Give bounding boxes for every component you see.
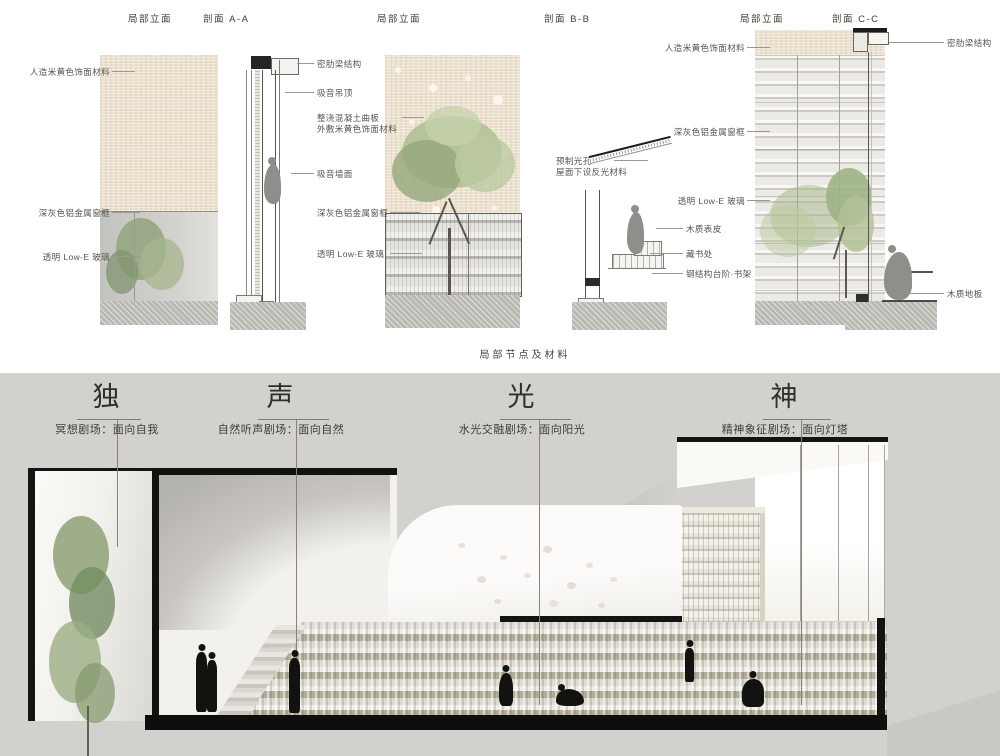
wall-cut-edge xyxy=(877,618,885,728)
label-acoustic-ceiling: 吸音吊顶 xyxy=(317,88,353,99)
label-lowe-glass: 透明 Low-E 玻璃 xyxy=(635,196,745,207)
presentation-board: 局部立面 剖面 A-A 局部立面 剖面 B-B 局部立面 剖面 C-C xyxy=(0,0,1000,756)
tree-trunk xyxy=(448,228,451,298)
leader-line xyxy=(650,253,683,254)
leader-line xyxy=(614,160,648,161)
tree-canopy xyxy=(760,205,816,257)
ceiling-cut-edge xyxy=(677,437,888,442)
window-mullion xyxy=(468,214,469,296)
header-section-aa: 剖面 A-A xyxy=(203,11,249,25)
detail-sheet: 局部立面 剖面 A-A 局部立面 剖面 B-B 局部立面 剖面 C-C xyxy=(0,0,1000,373)
standing-person-figure xyxy=(207,660,217,712)
label-beige-finish: 人造米黄色饰面材料 xyxy=(0,67,110,78)
leader-line xyxy=(656,228,683,229)
label-concrete-finish: 外敷米黄色饰面材料 xyxy=(317,124,397,135)
label-gray-frame: 深灰色铝金属窗框 xyxy=(0,208,110,219)
theater-glyph: 神 xyxy=(715,375,855,414)
sheet-caption: 局部节点及材料 xyxy=(440,346,610,361)
label-rib-beam: 密肋梁结构 xyxy=(947,38,992,49)
meditation-wall xyxy=(28,468,159,721)
glazing-line xyxy=(871,52,872,312)
label-lowe-glass: 透明 Low-E 玻璃 xyxy=(317,249,384,260)
leader-line xyxy=(906,293,944,294)
theater-glyph: 声 xyxy=(211,375,351,414)
label-steel-step-bookshelf: 钢结构台阶·书架 xyxy=(686,269,752,280)
wall-line xyxy=(246,70,247,302)
caption-leader xyxy=(539,419,540,705)
leader-line xyxy=(747,47,770,48)
elevation-1-base xyxy=(100,301,218,325)
label-rib-beam: 密肋梁结构 xyxy=(317,59,362,70)
standing-person-figure xyxy=(289,658,300,713)
theater-subtitle: 自然听声剧场：面向自然 xyxy=(211,421,351,437)
plant-foliage xyxy=(75,663,115,723)
ground-hatch xyxy=(230,302,306,330)
theater-sheng: 声 自然听声剧场：面向自然 xyxy=(211,375,351,437)
standing-person-figure xyxy=(685,648,694,682)
theater-subtitle: 冥想剧场：面向自我 xyxy=(37,421,177,437)
caption-leader xyxy=(801,419,802,705)
theater-subtitle: 水光交融剧场：面向阳光 xyxy=(452,421,592,437)
elevation-1-beige-panel xyxy=(100,55,218,211)
wall-line xyxy=(251,70,252,302)
crouching-person-figure xyxy=(742,679,764,707)
base-plinth xyxy=(145,715,887,730)
theater-subtitle: 精神象征剧场：面向灯塔 xyxy=(715,421,855,437)
theater-guang: 光 水光交融剧场：面向阳光 xyxy=(452,375,592,437)
label-gray-frame: 深灰色铝金属窗框 xyxy=(317,208,388,219)
skylight-dots xyxy=(458,543,465,548)
leader-line xyxy=(297,63,314,64)
theater-du: 独 冥想剧场：面向自我 xyxy=(37,375,177,437)
leader-line xyxy=(889,42,944,43)
insulation-layer xyxy=(255,70,260,306)
ground-hatch xyxy=(572,302,667,330)
glass-corner-line xyxy=(884,445,885,621)
label-gray-frame: 深灰色铝金属窗框 xyxy=(635,127,745,138)
theater-glyph: 独 xyxy=(37,375,177,414)
caption-leader xyxy=(117,419,118,547)
leader-line xyxy=(285,92,314,93)
plant-foliage xyxy=(140,238,184,290)
glass-mullion xyxy=(868,445,869,621)
plant-stem xyxy=(87,706,89,756)
sill-cut xyxy=(585,278,600,286)
theater-shen: 神 精神象征剧场：面向灯塔 xyxy=(715,375,855,437)
wall-line xyxy=(262,70,263,310)
glazing-line xyxy=(868,52,869,312)
window-mullion xyxy=(134,212,135,302)
header-elevation-2: 局部立面 xyxy=(377,11,421,25)
ground-hatch xyxy=(845,302,937,330)
standing-person-figure xyxy=(196,652,207,712)
label-wood-skin: 木质表皮 xyxy=(686,224,722,235)
leader-line xyxy=(390,212,420,213)
roof-beam-cut xyxy=(251,56,271,69)
window-mullion xyxy=(797,55,798,301)
seated-person-figure xyxy=(627,212,644,254)
curved-ceiling-shading xyxy=(159,475,390,630)
leader-line xyxy=(652,273,683,274)
elevation-1-glass xyxy=(100,211,218,303)
section-cc-beam-detail xyxy=(853,28,889,52)
label-concrete-panel: 整浇混凝土曲板 xyxy=(317,113,379,124)
leader-line xyxy=(747,131,770,132)
section-perspective: 独 冥想剧场：面向自我 声 自然听声剧场：面向自然 光 水光交融剧场：面向阳光 … xyxy=(0,373,1000,756)
label-beige-finish: 人造米黄色饰面材料 xyxy=(635,43,745,54)
light-hole-dots xyxy=(395,67,401,73)
elevation-2-glass xyxy=(385,213,522,297)
label-roof-reflective: 屋面下设反光材料 xyxy=(556,167,627,178)
theater-glyph: 光 xyxy=(452,375,592,414)
light-theater-roof xyxy=(388,505,682,622)
step-bench-detail xyxy=(612,254,664,269)
leader-line xyxy=(402,117,424,118)
header-elevation-3: 局部立面 xyxy=(740,11,784,25)
roof-cut-edge xyxy=(500,616,682,622)
label-acoustic-wall: 吸音墙面 xyxy=(317,169,353,180)
label-book-storage: 藏书处 xyxy=(686,249,713,260)
base-line xyxy=(608,268,666,269)
label-lowe-glass: 透明 Low-E 玻璃 xyxy=(0,252,110,263)
leader-line xyxy=(112,71,135,72)
sloped-roof-detail xyxy=(589,136,673,166)
section-aa-drawing xyxy=(234,52,304,332)
elevation-2-base xyxy=(385,295,520,328)
tree-canopy xyxy=(392,140,462,202)
header-section-bb: 剖面 B-B xyxy=(544,11,590,25)
leader-line xyxy=(747,200,770,201)
tree-trunk xyxy=(845,250,847,298)
leader-line xyxy=(390,253,422,254)
caption-leader xyxy=(296,419,297,672)
header-section-cc: 剖面 C-C xyxy=(832,11,880,25)
label-light-holes: 预制光孔 xyxy=(556,156,592,167)
sitting-person-figure xyxy=(499,673,513,706)
leader-line xyxy=(112,212,140,213)
leader-line xyxy=(112,256,140,257)
header-elevation-1: 局部立面 xyxy=(128,11,172,25)
label-wood-floor: 木质地板 xyxy=(947,289,983,300)
tree-canopy xyxy=(425,106,481,146)
seated-person-figure xyxy=(264,164,281,204)
glass-mullion xyxy=(838,445,839,621)
exterior-ground xyxy=(887,690,1000,756)
leader-line xyxy=(291,173,314,174)
